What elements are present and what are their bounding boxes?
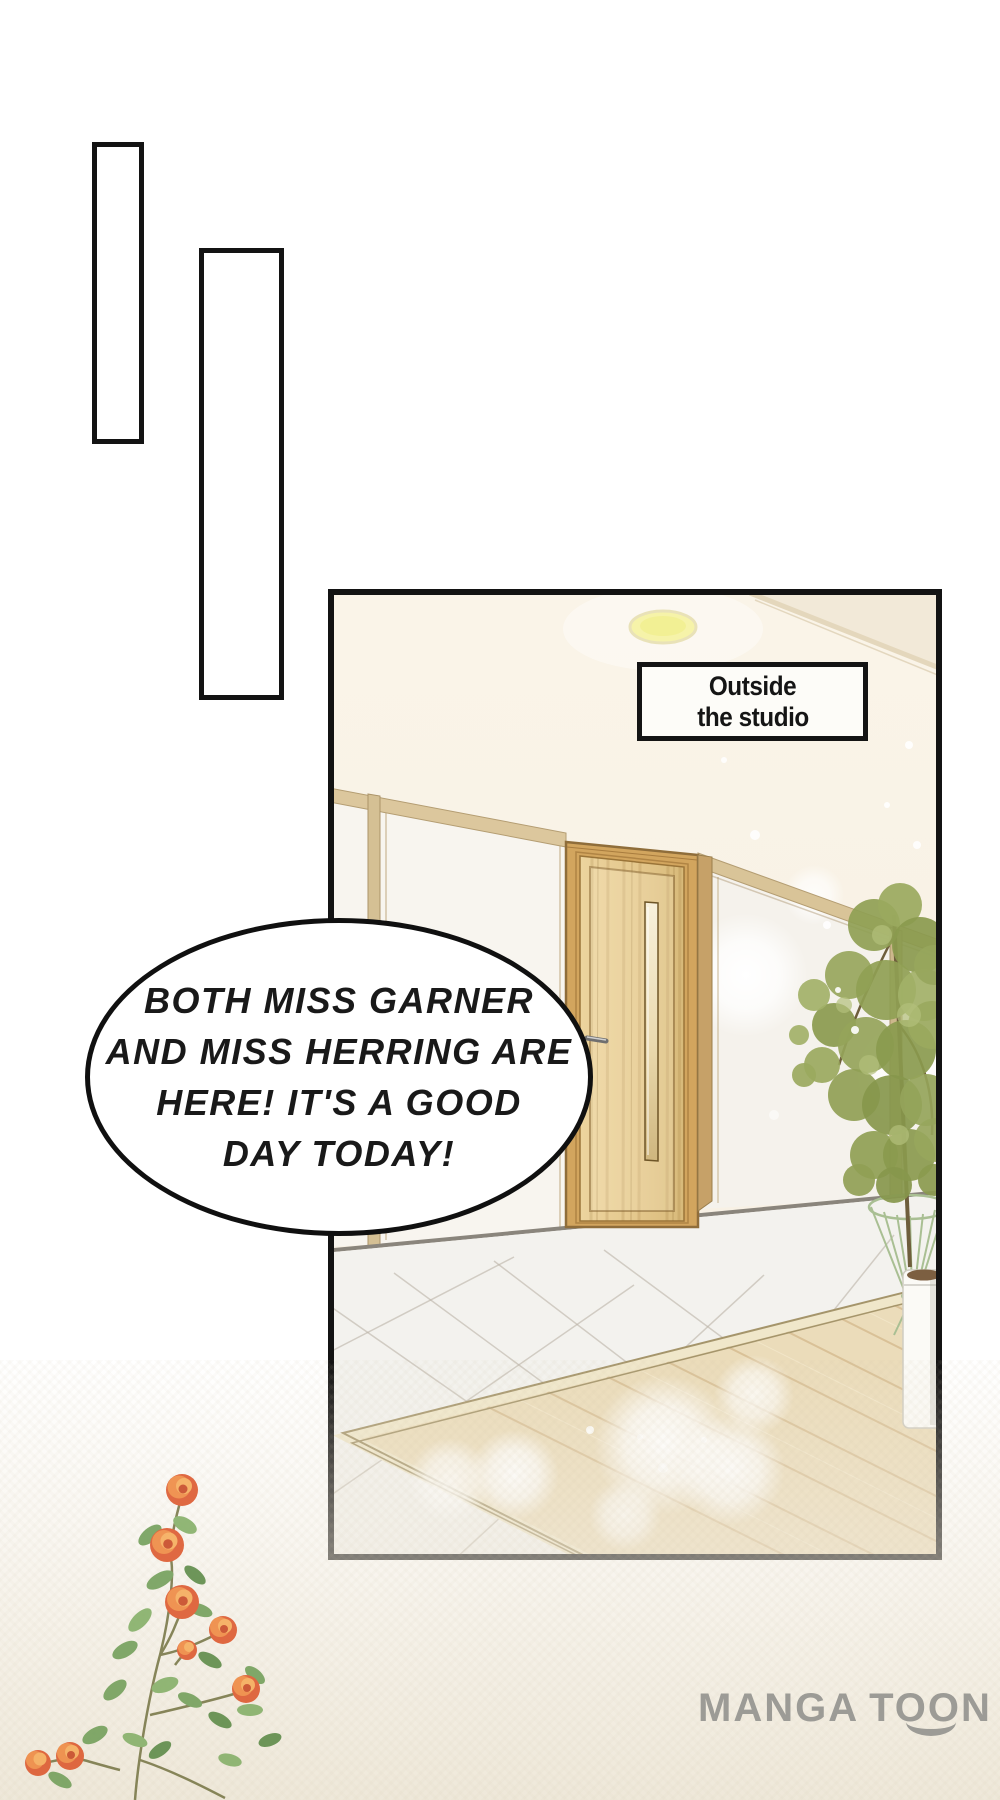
mangatoon-logo-part1: MANGA (698, 1686, 859, 1730)
plant-pot (903, 1270, 936, 1429)
scene-caption-line-1: Outside (709, 671, 796, 702)
mangatoon-smile-icon (906, 1708, 956, 1736)
speech-line-2: AND MISS HERRING ARE (106, 1026, 573, 1077)
ceiling-light (630, 611, 696, 643)
speech-line-4: DAY TODAY! (223, 1128, 455, 1179)
empty-panel-2 (199, 248, 284, 700)
scene-caption-line-2: the studio (697, 702, 809, 733)
speech-line-3: HERE! IT'S A GOOD (156, 1077, 521, 1128)
speech-line-1: BOTH MISS GARNER (144, 975, 534, 1026)
manga-page: { "artwork": { "scene_label": { "line1":… (0, 0, 1000, 1800)
scene-caption-box: Outside the studio (637, 662, 868, 741)
studio-door (566, 842, 712, 1227)
empty-panel-1 (92, 142, 144, 444)
rose-branch-art (0, 1440, 300, 1800)
speech-bubble: BOTH MISS GARNER AND MISS HERRING ARE HE… (85, 918, 593, 1236)
